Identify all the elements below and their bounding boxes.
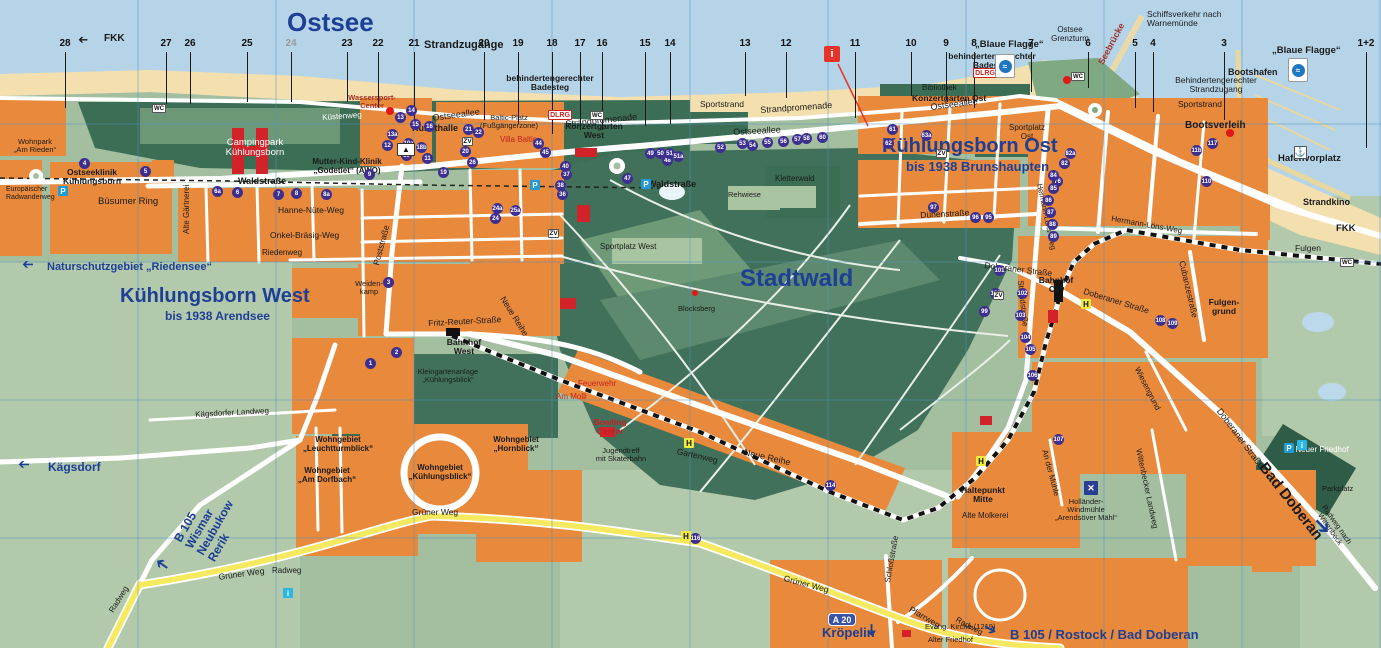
poi-marker-12: 12	[382, 140, 393, 151]
beach-access-tick	[414, 52, 415, 128]
beach-access-tick	[190, 52, 191, 104]
beach-access-tick	[484, 52, 485, 120]
fkk-west-arrow: ➔	[78, 34, 88, 46]
poi-marker-7: 7	[273, 189, 284, 200]
beach-access-tick	[580, 52, 581, 130]
poi-marker-6a: 6a	[212, 186, 223, 197]
poi-marker-11b: 11b	[1191, 145, 1202, 156]
poi-marker-52: 52	[715, 142, 726, 153]
beach-access-tick	[347, 52, 348, 102]
beach-access-tick	[378, 52, 379, 108]
bus-stop-icon: H	[684, 438, 694, 448]
zv-badge: ZV	[548, 229, 559, 238]
bus-stop-icon: H	[1081, 299, 1091, 309]
poi-marker-15: 15	[410, 119, 421, 130]
wc-icon: WC	[1340, 258, 1354, 267]
poi-marker-11: 11	[422, 153, 433, 164]
beach-access-number: 10	[898, 38, 924, 49]
info-icon: i	[824, 46, 840, 62]
poi-marker-8: 8	[291, 188, 302, 199]
beach-access-tick	[247, 52, 248, 102]
poi-marker-104: 104	[1020, 332, 1031, 343]
poi-marker-117: 117	[1207, 138, 1218, 149]
kuehlungsborn-town-map: 2827262524232221201918171615141312111098…	[0, 0, 1381, 648]
beach-access-tick	[291, 52, 292, 102]
poi-marker-89: 89	[1048, 231, 1059, 242]
poi-marker-13a: 13a	[387, 129, 398, 140]
beach-access-tick	[518, 52, 519, 124]
beach-access-number: 27	[153, 38, 179, 49]
poi-marker-47: 47	[622, 173, 633, 184]
poi-marker-103: 103	[1015, 310, 1026, 321]
poi-marker-101: 101	[994, 265, 1005, 276]
beach-access-tick	[1224, 52, 1225, 120]
parking-icon: P	[1284, 443, 1294, 453]
campsite-icon: ▲	[397, 143, 415, 156]
poi-marker-61: 61	[887, 124, 898, 135]
beach-access-number: 8	[961, 38, 987, 49]
beach-access-number: 20	[471, 38, 497, 49]
beach-access-number: 24	[278, 38, 304, 49]
poi-marker-84: 84	[1048, 170, 1059, 181]
blue-flag-icon: ≈	[1288, 58, 1308, 82]
beach-access-tick	[670, 52, 671, 124]
poi-marker-55: 55	[762, 137, 773, 148]
poi-marker-82a: 82a	[1065, 148, 1076, 159]
beach-access-number: 13	[732, 38, 758, 49]
poi-marker-116: 116	[690, 533, 701, 544]
beach-access-tick	[645, 52, 646, 126]
beach-access-number: 21	[401, 38, 427, 49]
beach-access-number: 28	[52, 38, 78, 49]
beach-access-tick	[911, 52, 912, 96]
beach-access-tick	[166, 52, 167, 104]
beach-access-tick	[1135, 52, 1136, 108]
info-icon: i	[1297, 440, 1307, 450]
poi-marker-20: 20	[460, 146, 471, 157]
anchor-icon: ⚓	[1294, 146, 1307, 159]
beach-access-number: 22	[365, 38, 391, 49]
poi-marker-3: 3	[383, 277, 394, 288]
poi-marker-108: 108	[1155, 315, 1166, 326]
poi-marker-40: 40	[560, 161, 571, 172]
poi-marker-62: 62	[883, 138, 894, 149]
beach-access-number: 26	[177, 38, 203, 49]
beach-access-number: 9	[933, 38, 959, 49]
poi-marker-114: 114	[825, 480, 836, 491]
poi-marker-26: 26	[467, 157, 478, 168]
info-icon: i	[283, 588, 293, 598]
beach-access-number: 23	[334, 38, 360, 49]
poi-marker-14: 14	[406, 105, 417, 116]
poi-marker-106: 106	[1027, 370, 1038, 381]
zv-badge: ZV	[462, 137, 473, 146]
poi-marker-25a: 25a	[510, 205, 521, 216]
wc-icon: WC	[1071, 72, 1085, 81]
bus-stop-icon: H	[681, 531, 691, 541]
poi-marker-87: 87	[1045, 207, 1056, 218]
beach-access-number: 18	[539, 38, 565, 49]
poi-marker-96: 96	[970, 212, 981, 223]
poi-marker-107: 107	[1053, 434, 1064, 445]
beach-access-number: 7	[1018, 38, 1044, 49]
parking-icon: P	[530, 180, 540, 190]
beach-access-number: 15	[632, 38, 658, 49]
parking-icon: P	[58, 186, 68, 196]
poi-marker-16: 16	[424, 121, 435, 132]
beach-access-number: 1+2	[1353, 38, 1379, 49]
windmill-icon: ✕	[1084, 481, 1098, 495]
poi-marker-19: 19	[438, 167, 449, 178]
beach-access-tick	[786, 52, 787, 98]
poi-marker-109: 109	[1167, 318, 1178, 329]
poi-marker-24: 24	[490, 213, 501, 224]
poi-marker-2: 2	[391, 347, 402, 358]
poi-marker-60: 60	[817, 132, 828, 143]
poi-marker-45: 45	[540, 147, 551, 158]
beach-access-tick	[1088, 52, 1089, 88]
motorway-a20-badge: A 20	[828, 613, 856, 626]
beach-access-tick	[552, 52, 553, 134]
poi-marker-58: 58	[801, 133, 812, 144]
poi-marker-5: 5	[140, 166, 151, 177]
dlrg-badge: DLRG	[973, 68, 997, 78]
poi-marker-97: 97	[928, 202, 939, 213]
parking-icon: P	[641, 179, 651, 189]
zv-badge: ZV	[993, 291, 1004, 300]
flag-wave-circle: ≈	[1292, 64, 1305, 77]
blue-flag-icon: ≈	[995, 54, 1015, 78]
bus-stop-icon: H	[976, 456, 986, 466]
beach-access-number: 19	[505, 38, 531, 49]
beach-access-tick	[1366, 52, 1367, 148]
poi-marker-51a: 51a	[673, 151, 684, 162]
poi-marker-105: 105	[1025, 344, 1036, 355]
poi-marker-95: 95	[983, 212, 994, 223]
poi-marker-102: 102	[1017, 288, 1028, 299]
beach-access-number: 16	[589, 38, 615, 49]
poi-marker-9: 9	[364, 169, 375, 180]
poi-marker-110: 110	[1201, 176, 1212, 187]
poi-marker-63a: 63a	[921, 130, 932, 141]
poi-marker-1: 1	[365, 358, 376, 369]
kaegsdorf-arrow: ➔	[18, 458, 30, 472]
wc-icon: WC	[152, 104, 166, 113]
poi-marker-6: 6	[232, 187, 243, 198]
beach-access-tick	[855, 52, 856, 118]
poi-marker-22: 22	[473, 127, 484, 138]
wc-icon: WC	[590, 111, 604, 120]
poi-marker-88: 88	[1047, 219, 1058, 230]
beach-access-tick	[65, 52, 66, 108]
dlrg-badge: DLRG	[548, 110, 572, 120]
flag-wave-circle: ≈	[999, 60, 1012, 73]
poi-marker-86: 86	[1043, 195, 1054, 206]
beach-access-tick	[1031, 52, 1032, 92]
beach-access-tick	[1153, 52, 1154, 112]
poi-marker-38: 38	[555, 180, 566, 191]
poi-marker-82: 82	[1059, 158, 1070, 169]
beach-access-tick	[745, 52, 746, 96]
beach-access-tick	[974, 52, 975, 108]
poi-marker-4: 4	[79, 158, 90, 169]
beach-access-number: 14	[657, 38, 683, 49]
poi-marker-8a: 8a	[321, 189, 332, 200]
poi-marker-18b: 18b	[416, 142, 427, 153]
riedensee-arrow: ➔	[22, 258, 34, 272]
beach-access-tick	[946, 52, 947, 100]
kroepelin-arrow: ➔	[863, 623, 879, 636]
beach-access-number: 25	[234, 38, 260, 49]
poi-marker-99: 99	[979, 306, 990, 317]
poi-marker-54: 54	[747, 140, 758, 151]
poi-marker-85: 85	[1048, 183, 1059, 194]
beach-access-number: 11	[842, 38, 868, 49]
zv-badge: ZV	[936, 149, 947, 158]
poi-marker-56: 56	[778, 136, 789, 147]
beach-access-number: 12	[773, 38, 799, 49]
poi-marker-24a: 24a	[492, 203, 503, 214]
beach-access-number: 3	[1211, 38, 1237, 49]
beach-access-number: 4	[1140, 38, 1166, 49]
beach-access-number: 6	[1075, 38, 1101, 49]
poi-marker-13: 13	[395, 112, 406, 123]
